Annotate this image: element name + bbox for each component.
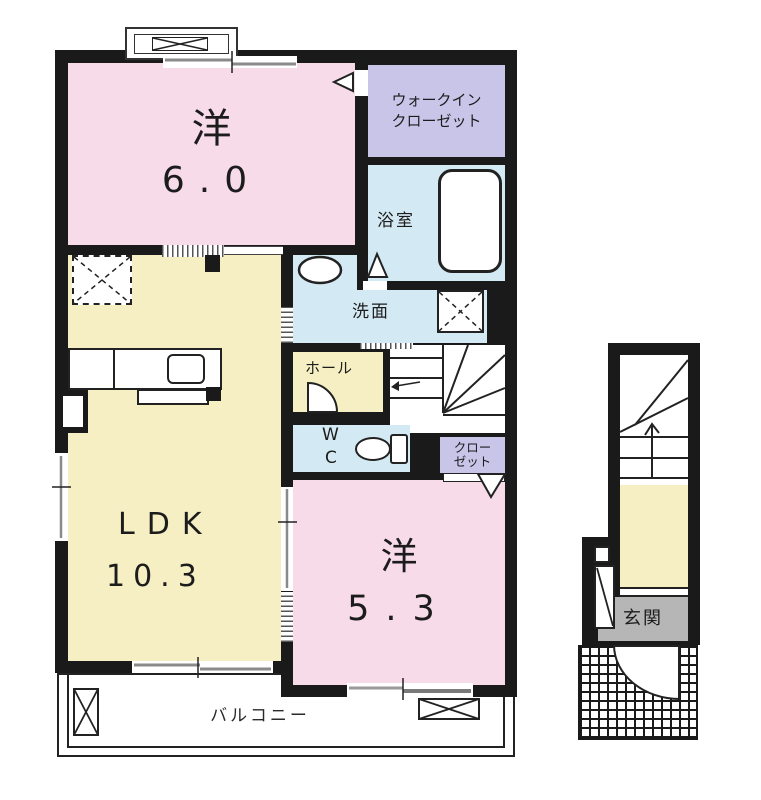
bathroom-label: 浴室 [377,212,415,232]
kitchen-counter-end [206,387,221,401]
washing-machine-space [437,290,484,333]
wic-label-line1: ウォークイン [391,92,481,109]
room-western-5: 洋 5.3 [293,480,505,685]
room-ldk [68,255,281,661]
room-western-6-size: 6.0 [162,160,261,201]
ldk-western5-opening [281,487,293,591]
refrigerator-space [72,255,132,305]
top-window [163,56,297,68]
ldk-balcony-door [132,661,273,673]
kitchen-counter-lower [137,389,209,405]
entrance-stairs-area [620,355,688,485]
ldk-western5-door [281,592,293,642]
wall-stub [205,255,220,272]
partition-opening [224,246,283,255]
room-western-5-name: 洋 [381,536,418,579]
stairs-main-area [390,345,505,433]
bay-window-vent [152,37,208,51]
ldk-size: 10.3 [106,560,205,595]
room-western-5-size: 5.3 [347,589,451,629]
kitchen-counter-divider [113,350,115,388]
room-western-6: 洋 6.0 [68,63,355,245]
balcony-label: バルコニー [180,707,340,727]
bathtub [438,169,502,273]
balcony-vent-right [418,698,480,720]
western5-balcony-window [347,683,473,697]
hall-label: ホール [305,360,353,377]
room-walk-in-closet: ウォークイン クローゼット [368,65,505,157]
closet-door-strip [443,473,505,482]
closet-label-line2: ゼット [454,455,492,469]
wc-label-c: C [325,449,337,469]
ldk-washroom-door [281,307,293,343]
room-closet: クロー ゼット [440,437,505,473]
bath-door-gap [363,281,387,290]
ldk-name: LDK [118,508,214,543]
genkan-label: 玄関 [623,609,663,630]
wc-label-w: W [322,426,339,446]
entrance-side-door [594,565,615,629]
kitchen-wall-stub-niche [63,396,83,427]
room-western-6-name: 洋 [192,106,232,152]
balcony-vent-left [73,688,99,736]
wic-label-line2: クローゼット [391,113,481,130]
entrance-step [620,587,688,597]
washroom-label: 洗面 [352,303,390,323]
wic-door-gap [355,70,368,96]
room-washroom-left [293,255,357,343]
room-wc [293,425,410,472]
ldk-left-window [55,453,68,541]
entrance-side-niche [594,546,610,563]
floor-plan: 洋 6.0 ウォークイン クローゼット 浴室 洗面 ホール W C クロー ゼッ… [0,0,761,800]
entrance-hall-floor [620,485,688,587]
washroom-stairs-hatch [360,343,413,349]
closet-label-line1: クロー [454,441,492,455]
kitchen-sink [167,354,205,384]
